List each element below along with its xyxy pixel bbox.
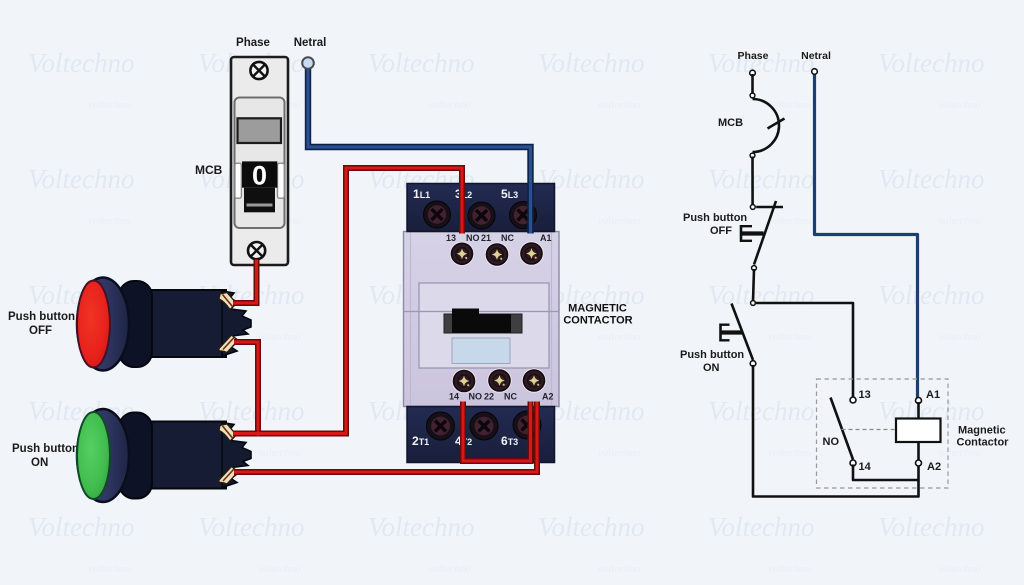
svg-text:Voltechno: Voltechno: [538, 48, 644, 78]
svg-text:2T1: 2T1: [412, 434, 429, 448]
svg-text:voltechno: voltechno: [768, 331, 811, 343]
svg-text:voltechno: voltechno: [88, 215, 131, 227]
svg-text:Voltechno: Voltechno: [708, 280, 814, 310]
svg-text:Push button: Push button: [12, 443, 79, 455]
svg-text:1L1: 1L1: [413, 187, 430, 201]
svg-text:voltechno: voltechno: [88, 99, 131, 111]
svg-text:A2: A2: [927, 461, 941, 473]
svg-text:22: 22: [484, 392, 494, 402]
svg-text:Push button: Push button: [680, 349, 744, 361]
svg-text:Voltechno: Voltechno: [28, 48, 134, 78]
svg-text:voltechno: voltechno: [428, 99, 471, 111]
svg-text:voltechno: voltechno: [258, 563, 301, 575]
svg-text:voltechno: voltechno: [768, 563, 811, 575]
svg-text:MAGNETIC: MAGNETIC: [568, 303, 627, 315]
svg-text:NO: NO: [466, 233, 480, 243]
svg-text:14: 14: [859, 461, 872, 473]
svg-text:13: 13: [446, 233, 456, 243]
svg-text:NC: NC: [504, 392, 517, 402]
svg-text:ON: ON: [703, 362, 720, 374]
svg-text:voltechno: voltechno: [258, 447, 301, 459]
svg-text:Voltechno: Voltechno: [198, 512, 304, 542]
svg-text:Push button: Push button: [8, 311, 75, 323]
svg-text:Voltechno: Voltechno: [368, 48, 474, 78]
svg-text:NC: NC: [501, 233, 514, 243]
svg-text:OFF: OFF: [29, 325, 52, 337]
svg-text:CONTACTOR: CONTACTOR: [563, 315, 632, 327]
svg-text:voltechno: voltechno: [768, 447, 811, 459]
svg-text:Voltechno: Voltechno: [708, 396, 814, 426]
svg-text:MCB: MCB: [195, 163, 223, 177]
svg-text:0: 0: [252, 161, 267, 191]
svg-text:14: 14: [449, 392, 459, 402]
svg-text:Voltechno: Voltechno: [708, 512, 814, 542]
svg-text:NO: NO: [469, 392, 483, 402]
svg-text:Voltechno: Voltechno: [708, 164, 814, 194]
svg-text:NO: NO: [823, 436, 840, 448]
svg-text:13: 13: [859, 389, 871, 401]
svg-text:Phase: Phase: [236, 37, 270, 49]
svg-text:voltechno: voltechno: [938, 563, 981, 575]
svg-text:Voltechno: Voltechno: [878, 164, 984, 194]
svg-text:6T3: 6T3: [501, 434, 518, 448]
svg-text:Voltechno: Voltechno: [878, 280, 984, 310]
svg-text:Netral: Netral: [294, 37, 327, 49]
svg-text:Voltechno: Voltechno: [538, 512, 644, 542]
svg-text:voltechno: voltechno: [598, 99, 641, 111]
svg-text:Contactor: Contactor: [957, 437, 1010, 449]
svg-text:A1: A1: [540, 233, 552, 243]
svg-text:voltechno: voltechno: [598, 215, 641, 227]
svg-text:voltechno: voltechno: [768, 215, 811, 227]
svg-text:voltechno: voltechno: [938, 215, 981, 227]
svg-text:voltechno: voltechno: [598, 447, 641, 459]
svg-text:A2: A2: [542, 392, 554, 402]
svg-text:Voltechno: Voltechno: [28, 164, 134, 194]
svg-text:voltechno: voltechno: [938, 447, 981, 459]
svg-text:A1: A1: [926, 389, 940, 401]
svg-text:voltechno: voltechno: [598, 331, 641, 343]
svg-text:voltechno: voltechno: [938, 331, 981, 343]
svg-text:5L3: 5L3: [501, 187, 518, 201]
svg-text:Voltechno: Voltechno: [368, 512, 474, 542]
svg-text:MCB: MCB: [718, 117, 743, 129]
svg-text:OFF: OFF: [710, 225, 732, 237]
svg-text:Magnetic: Magnetic: [958, 425, 1006, 437]
svg-text:voltechno: voltechno: [938, 99, 981, 111]
svg-text:ON: ON: [31, 457, 48, 469]
svg-text:voltechno: voltechno: [258, 331, 301, 343]
svg-text:Voltechno: Voltechno: [878, 48, 984, 78]
svg-text:voltechno: voltechno: [598, 563, 641, 575]
svg-text:21: 21: [481, 233, 491, 243]
svg-text:Push button: Push button: [683, 212, 747, 224]
svg-text:voltechno: voltechno: [428, 563, 471, 575]
svg-text:Voltechno: Voltechno: [878, 512, 984, 542]
svg-text:Voltechno: Voltechno: [28, 512, 134, 542]
svg-text:Netral: Netral: [801, 50, 831, 62]
svg-text:voltechno: voltechno: [88, 563, 131, 575]
svg-text:Phase: Phase: [738, 50, 769, 62]
